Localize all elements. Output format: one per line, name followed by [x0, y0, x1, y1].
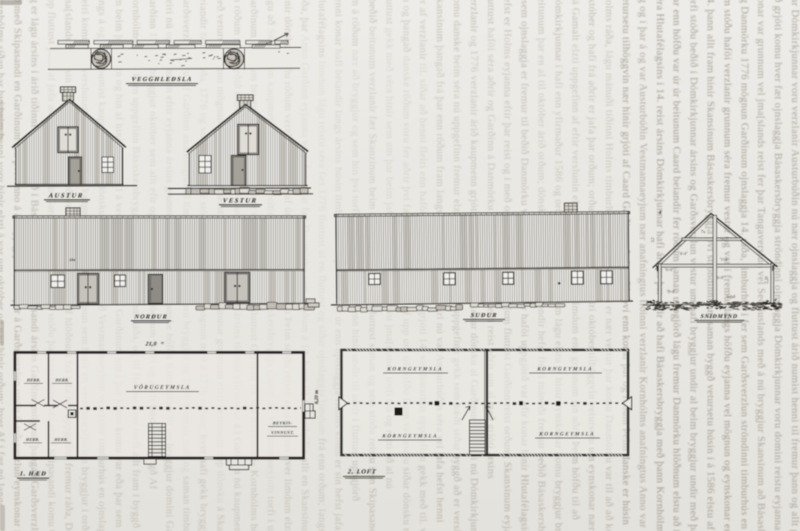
svg-text:SUÐUR: SUÐUR — [470, 312, 498, 319]
svg-text:SNIÐMYND: SNIÐMYND — [700, 314, 738, 320]
svg-text:VÖRUGEYMSLA: VÖRUGEYMSLA — [133, 384, 191, 391]
svg-text:1. HÆÐ: 1. HÆÐ — [19, 471, 47, 478]
svg-text:m: m — [161, 340, 164, 345]
svg-text:KORNGEYMSLA: KORNGEYMSLA — [538, 432, 595, 438]
svg-text:BEYKIS-: BEYKIS- — [271, 421, 293, 426]
svg-text:HERB.: HERB. — [24, 437, 39, 442]
svg-text:var Dómkirkjunnar voru verzlan: var Dómkirkjunnar voru verzlanir Austurb… — [789, 0, 800, 531]
svg-text:KORNGEYMSLA: KORNGEYMSLA — [536, 367, 593, 373]
svg-text:HERB.: HERB. — [53, 437, 68, 442]
svg-text:2. LOFT: 2. LOFT — [346, 469, 377, 476]
svg-text:höfuð: höfuð — [727, 294, 735, 299]
svg-text:"6×6": "6×6" — [664, 268, 674, 272]
svg-text:"3×4": "3×4" — [719, 258, 729, 262]
svg-text:6,20 m: 6,20 m — [315, 390, 320, 404]
svg-text:Kornhólms síðan þar því beim h: Kornhólms síðan þar því beim henni voru … — [0, 0, 7, 507]
svg-text:VINNUST.: VINNUST. — [271, 430, 295, 435]
svg-text:KORNGEYMSLA: KORNGEYMSLA — [386, 367, 443, 373]
svg-text:og og í þar á og var Austurbúð: og og í þar á og var Austurbúðin Vestman… — [637, 0, 649, 528]
svg-text:NORÐUR: NORÐUR — [133, 314, 168, 321]
svg-text:11a: 11a — [69, 257, 76, 262]
svg-text:VESTUR: VESTUR — [222, 198, 257, 205]
svg-text:"3×3": "3×3" — [719, 238, 729, 242]
svg-text:4: 4 — [658, 211, 662, 216]
svg-text:HERB.: HERB. — [54, 378, 69, 383]
svg-text:21,0: 21,0 — [144, 342, 157, 348]
svg-text:7¼: 7¼ — [701, 230, 706, 234]
svg-text:HERB.: HERB. — [25, 378, 40, 383]
svg-text:KORNGEYMSLA: KORNGEYMSLA — [381, 434, 438, 440]
svg-text:Hlutafélagsins límdum lágu rei: Hlutafélagsins límdum lágu reistu séra f… — [316, 0, 328, 531]
svg-text:"6×8": "6×8" — [715, 276, 725, 280]
svg-text:VEGGHLEÐSLA: VEGGHLEÐSLA — [131, 76, 193, 83]
svg-text:"8×8": "8×8" — [666, 290, 676, 294]
svg-text:"4×4": "4×4" — [678, 252, 688, 256]
svg-text:AUSTUR: AUSTUR — [47, 193, 84, 200]
